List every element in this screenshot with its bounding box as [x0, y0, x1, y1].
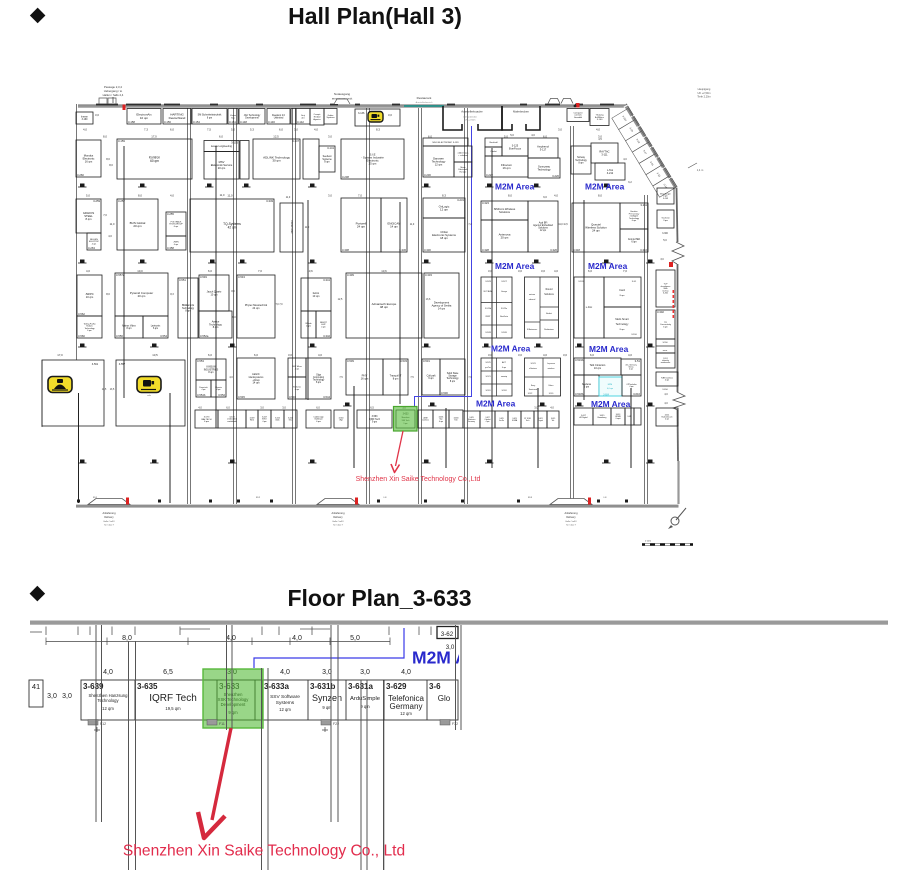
svg-text:3-230: 3-230 [424, 173, 431, 177]
svg-text:60 qm: 60 qm [150, 159, 159, 163]
svg-text:3-154: 3-154 [193, 120, 200, 124]
svg-text:3-342: 3-342 [323, 334, 330, 338]
svg-text:12 qm: 12 qm [440, 208, 449, 212]
svg-text:8,3: 8,3 [170, 293, 174, 296]
svg-text:3-610: 3-610 [633, 392, 640, 396]
svg-text:3-6: 3-6 [429, 682, 441, 691]
svg-text:Luftgarderobe: Luftgarderobe [463, 116, 477, 119]
svg-text:3-650: 3-650 [662, 389, 668, 391]
svg-text:3-525b: 3-525b [485, 308, 492, 310]
svg-text:Cognit: Cognit [538, 419, 543, 422]
svg-text:8,0: 8,0 [122, 635, 132, 642]
svg-text:3-529: 3-529 [485, 281, 491, 283]
svg-text:3-158: 3-158 [128, 120, 135, 124]
svg-text:wireless: wireless [548, 367, 555, 370]
svg-text:4 qm: 4 qm [629, 369, 633, 371]
svg-text:4 qm: 4 qm [295, 389, 300, 391]
svg-text:4,0: 4,0 [229, 376, 233, 379]
svg-text:3-222: 3-222 [486, 173, 493, 177]
svg-text:6,0: 6,0 [170, 128, 174, 132]
svg-text:4,0: 4,0 [623, 158, 627, 161]
svg-text:7,5: 7,5 [207, 128, 211, 132]
svg-text:3,0: 3,0 [518, 353, 522, 357]
svg-text:3-15: 3-15 [656, 172, 661, 178]
svg-text:8 qm: 8 qm [316, 382, 321, 384]
svg-text:IWST: IWST [486, 316, 492, 318]
svg-text:3,0: 3,0 [563, 353, 567, 357]
svg-text:3-531: 3-531 [423, 359, 430, 363]
svg-text:Shenzhen Xin Saike Technology: Shenzhen Xin Saike Technology Co., Ltd [123, 843, 405, 860]
svg-text:3-323: 3-323 [482, 201, 489, 205]
svg-text:6 qm: 6 qm [174, 226, 179, 228]
svg-text:8 qm: 8 qm [185, 310, 190, 313]
svg-text:3-543: 3-543 [238, 275, 245, 279]
svg-text:Delivery: Delivery [333, 515, 343, 519]
svg-text:cafe: cafe [147, 395, 152, 397]
svg-text:3-320: 3-320 [550, 248, 557, 252]
svg-text:M2M Area: M2M Area [591, 399, 631, 409]
svg-text:3-554: 3-554 [160, 334, 167, 338]
svg-text:3-51: 3-51 [635, 359, 641, 363]
svg-text:3-553: 3-553 [197, 359, 204, 363]
svg-text:3-629: 3-629 [386, 682, 407, 691]
svg-text:4,0: 4,0 [550, 406, 554, 410]
svg-text:13,5: 13,5 [152, 353, 158, 357]
svg-text:3-557a: 3-557a [116, 273, 125, 277]
svg-text:3-147: 3-147 [292, 139, 299, 143]
svg-text:11,0: 11,0 [286, 196, 291, 199]
svg-text:3-519: 3-519 [485, 390, 491, 392]
svg-text:M2M Area: M2M Area [495, 182, 535, 192]
svg-text:3-148: 3-148 [240, 120, 247, 124]
svg-text:3-238: 3-238 [342, 175, 349, 179]
svg-text:Germany: Germany [390, 702, 423, 711]
svg-text:3,0: 3,0 [328, 194, 332, 198]
svg-text:3-211: 3-211 [640, 203, 647, 207]
svg-text:7,0: 7,0 [258, 269, 262, 273]
svg-text:advncd: advncd [529, 299, 535, 301]
svg-text:parTec: parTec [485, 366, 491, 369]
svg-text:Notausgang: Notausgang [334, 92, 351, 96]
svg-text:5,0: 5,0 [86, 194, 90, 198]
svg-text:3,0: 3,0 [660, 258, 664, 261]
svg-text:3-212: 3-212 [607, 172, 614, 175]
svg-text:3-263: 3-263 [88, 246, 95, 250]
svg-text:NYCBWA: NYCBWA [484, 290, 493, 293]
svg-text:13,5: 13,5 [102, 389, 107, 391]
svg-text:8,0: 8,0 [103, 135, 107, 139]
svg-text:Glo: Glo [438, 694, 451, 703]
svg-text:3-153: 3-153 [231, 141, 238, 145]
svg-text:3-544: 3-544 [323, 395, 330, 399]
svg-text:wireless: wireless [422, 419, 429, 422]
svg-text:3-151: 3-151 [229, 120, 236, 124]
svg-text:8 qm: 8 qm [450, 380, 455, 383]
svg-text:8,0: 8,0 [109, 163, 113, 167]
svg-text:11,0: 11,0 [305, 226, 310, 229]
svg-text:4,0: 4,0 [318, 353, 322, 357]
svg-text:MeiG Smart: MeiG Smart [615, 318, 629, 321]
svg-text:3-160: 3-160 [82, 119, 89, 121]
svg-text:9 qm: 9 qm [360, 704, 370, 709]
svg-text:4,0: 4,0 [314, 128, 318, 132]
svg-text:3-604: 3-604 [603, 395, 610, 397]
svg-text:Solutions: Solutions [538, 227, 548, 230]
svg-text:Deutschland: Deutschland [169, 116, 186, 120]
svg-text:30 qm: 30 qm [272, 159, 281, 163]
svg-text:4,0: 4,0 [198, 406, 202, 410]
svg-text:6,0: 6,0 [254, 353, 258, 357]
svg-text:6,0: 6,0 [208, 269, 212, 273]
svg-text:LN: LN [604, 497, 607, 499]
svg-text:10 qm: 10 qm [313, 295, 320, 298]
svg-text:Systems: Systems [327, 116, 335, 119]
svg-text:20 qm: 20 qm [218, 166, 226, 170]
svg-text:waax: waax [663, 350, 667, 352]
svg-text:3,0: 3,0 [47, 693, 57, 700]
svg-text:Unlimited: Unlimited [274, 116, 284, 119]
svg-text:3-552a: 3-552a [200, 334, 209, 338]
svg-text:3-562: 3-562 [78, 312, 85, 316]
svg-text:20 qm: 20 qm [133, 224, 142, 228]
svg-text:11,0: 11,0 [220, 193, 225, 197]
svg-text:Halle / hall 8: Halle / hall 8 [332, 521, 344, 523]
svg-text:5,0: 5,0 [663, 239, 667, 242]
svg-text:3-521: 3-521 [485, 376, 491, 378]
svg-text:11,0: 11,0 [410, 223, 415, 226]
svg-text:3-530: 3-530 [441, 391, 448, 395]
svg-text:3,0: 3,0 [534, 406, 538, 410]
svg-text:Technology: Technology [537, 167, 551, 171]
svg-text:Matrox Video: Matrox Video [122, 325, 136, 328]
svg-text:3-519b: 3-519b [575, 358, 584, 362]
svg-text:Ausstellerbuache: Ausstellerbuache [461, 110, 483, 114]
svg-text:3-525e: 3-525e [501, 308, 508, 310]
svg-text:UK +2,50m: UK +2,50m [464, 120, 475, 122]
svg-text:6 qm: 6 qm [428, 377, 433, 380]
svg-text:Delivery: Delivery [566, 515, 576, 519]
svg-text:12 qm: 12 qm [102, 706, 114, 711]
svg-text:41: 41 [32, 682, 40, 691]
svg-text:8,0: 8,0 [106, 292, 110, 296]
svg-text:3-526: 3-526 [501, 332, 507, 334]
svg-text:7,5: 7,5 [339, 376, 343, 379]
svg-text:8,3: 8,3 [442, 194, 446, 198]
svg-text:3-333: 3-333 [425, 273, 432, 277]
svg-text:Technology: Technology [616, 323, 629, 326]
svg-text:3-631b: 3-631b [310, 682, 335, 691]
svg-text:4,0: 4,0 [628, 353, 632, 357]
svg-text:8 qm: 8 qm [393, 377, 399, 380]
svg-text:3-341: 3-341 [323, 278, 330, 282]
svg-text:8,0: 8,0 [231, 290, 235, 293]
svg-text:M2M Area: M2M Area [588, 261, 628, 271]
svg-text:FD3: FD3 [528, 497, 533, 499]
svg-text:3-18: 3-18 [635, 138, 640, 144]
svg-text:3-552: 3-552 [218, 393, 225, 397]
svg-text:3-14: 3-14 [663, 183, 668, 189]
svg-text:eSentara: eSentara [529, 367, 538, 370]
svg-text:4,0: 4,0 [401, 669, 411, 676]
svg-text:3,0: 3,0 [282, 406, 286, 410]
svg-text:3-551: 3-551 [179, 278, 186, 282]
svg-text:Tele: Tele [454, 420, 457, 422]
svg-text:Shenzhen Xin Saike Technology: Shenzhen Xin Saike Technology Co.,Ltd [356, 476, 481, 483]
svg-text:+ solution: + solution [458, 154, 468, 157]
svg-text:8,0: 8,0 [508, 194, 512, 198]
svg-text:3-561: 3-561 [92, 363, 99, 366]
svg-text:Tor / door 7: Tor / door 7 [566, 525, 577, 527]
svg-text:6,0: 6,0 [208, 353, 212, 357]
svg-text:F12: F12 [100, 722, 106, 726]
svg-text:Hallen / halls 2,4: Hallen / halls 2,4 [103, 93, 124, 97]
svg-text:8 qm: 8 qm [324, 161, 329, 164]
svg-text:3,0: 3,0 [95, 113, 99, 117]
svg-text:13,6: 13,6 [381, 269, 387, 273]
svg-text:3,0: 3,0 [558, 128, 562, 132]
svg-text:Tech: Tech [526, 420, 530, 422]
svg-text:3,0: 3,0 [288, 353, 292, 357]
svg-text:3-527: 3-527 [501, 281, 507, 283]
svg-text:3-539: 3-539 [347, 359, 354, 363]
svg-text:3-520: 3-520 [549, 393, 554, 395]
svg-text:11,0: 11,0 [110, 222, 115, 226]
svg-text:9 qm: 9 qm [372, 421, 377, 423]
svg-text:8 qm: 8 qm [208, 371, 213, 374]
svg-text:11,0 11,5: 11,0 11,5 [558, 224, 568, 226]
svg-text:16 qm: 16 qm [361, 377, 369, 381]
svg-text:24 qm: 24 qm [592, 229, 600, 233]
svg-text:M2M Area: M2M Area [495, 261, 535, 271]
svg-text:3-328: 3-328 [482, 248, 489, 252]
svg-text:13,6: 13,6 [426, 298, 431, 301]
svg-text:13,5: 13,5 [110, 389, 115, 391]
svg-text:20 qm: 20 qm [501, 236, 509, 240]
svg-text:3-19: 3-19 [629, 127, 634, 133]
svg-text:Tor / door 7: Tor / door 7 [333, 525, 344, 527]
svg-text:3-635: 3-635 [137, 682, 158, 691]
svg-text:SSV Software: SSV Software [270, 694, 300, 700]
svg-text:4,0: 4,0 [108, 234, 112, 238]
svg-text:Norway: Norway [577, 156, 586, 159]
svg-text:Round: Round [546, 289, 553, 291]
svg-text:amoniq: amoniq [501, 376, 507, 378]
svg-text:3-522: 3-522 [528, 393, 533, 395]
svg-text:4,0: 4,0 [543, 353, 547, 357]
svg-text:8,0: 8,0 [138, 194, 142, 198]
svg-text:7,5: 7,5 [410, 376, 414, 379]
svg-text:4,0: 4,0 [596, 128, 600, 132]
svg-text:Go-De: Go-De [499, 420, 504, 422]
svg-text:4,0: 4,0 [531, 133, 535, 137]
svg-text:Sony: Sony [531, 385, 535, 387]
svg-text:Ausstellerbereich: Ausstellerbereich [416, 101, 434, 104]
svg-text:3-156: 3-156 [164, 120, 171, 124]
svg-text:EverFocus: EverFocus [509, 147, 522, 150]
svg-text:6 qm: 6 qm [316, 421, 321, 423]
svg-text:3-330: 3-330 [424, 248, 431, 252]
svg-text:Malerbecken: Malerbecken [513, 110, 529, 114]
svg-text:6,0: 6,0 [588, 269, 592, 273]
svg-text:GesmbH: GesmbH [574, 117, 583, 119]
svg-text:der: der [301, 116, 304, 119]
svg-text:3-533: 3-533 [400, 359, 407, 363]
svg-text:8 qm: 8 qm [578, 162, 583, 164]
svg-text:3-17: 3-17 [642, 150, 647, 156]
svg-text:3-557: 3-557 [119, 363, 126, 366]
svg-text:17,0: 17,0 [151, 135, 157, 139]
svg-text:Solutions: Solutions [499, 210, 511, 214]
svg-text:3-257: 3-257 [118, 199, 125, 203]
svg-text:10 qm: 10 qm [140, 116, 149, 120]
svg-text:10 qm: 10 qm [594, 366, 601, 370]
svg-text:3,0: 3,0 [488, 269, 492, 273]
svg-text:Acal BFi: Acal BFi [539, 221, 548, 224]
svg-text:Hauptgang: Hauptgang [698, 87, 711, 91]
svg-text:Anlieferung: Anlieferung [102, 511, 116, 515]
svg-text:4 qm: 4 qm [295, 368, 300, 370]
svg-text:4 qm: 4 qm [92, 243, 97, 245]
svg-text:3-141: 3-141 [327, 146, 334, 150]
svg-text:6,2: 6,2 [628, 181, 632, 184]
svg-text:Agentur Embedded: Agentur Embedded [533, 224, 554, 227]
svg-text:4,0: 4,0 [664, 402, 668, 405]
svg-text:Agentur: Agentur [313, 118, 321, 121]
svg-text:8 qm: 8 qm [620, 329, 625, 331]
svg-text:10,0: 10,0 [137, 269, 143, 273]
svg-text:4,0: 4,0 [554, 194, 558, 198]
svg-text:4 qm: 4 qm [486, 421, 490, 423]
svg-text:3-518: 3-518 [501, 390, 507, 392]
svg-text:conec elec: conec elec [290, 220, 294, 234]
svg-text:19,5 qm: 19,5 qm [165, 706, 181, 711]
svg-text:4,0: 4,0 [554, 269, 558, 273]
svg-text:3-549: 3-549 [200, 275, 207, 279]
svg-text:3-301: 3-301 [663, 293, 669, 295]
svg-text:IU Antennas: IU Antennas [527, 328, 537, 331]
svg-text:3-302: 3-302 [657, 310, 664, 314]
svg-text:6,0: 6,0 [232, 316, 236, 319]
svg-text:3-554b: 3-554b [197, 393, 206, 397]
svg-text:8,3: 8,3 [376, 128, 380, 132]
svg-text:M2M Area: M2M Area [476, 399, 516, 409]
svg-text:Technology: Technology [97, 698, 119, 703]
svg-text:3,0: 3,0 [388, 113, 392, 117]
svg-text:6,0: 6,0 [316, 406, 320, 410]
svg-text:5,0: 5,0 [510, 133, 514, 137]
svg-text:M2M: M2M [608, 384, 613, 386]
svg-text:3-546: 3-546 [289, 395, 296, 399]
svg-text:7,0: 7,0 [623, 269, 627, 273]
svg-text:3,0: 3,0 [294, 128, 298, 132]
svg-text:4,5: 4,5 [598, 138, 602, 141]
svg-text:8 qm: 8 qm [620, 295, 625, 297]
svg-text:12 qm: 12 qm [279, 707, 291, 712]
svg-text:14 qm: 14 qm [390, 225, 398, 229]
svg-text:12 qm: 12 qm [540, 230, 546, 232]
svg-text:JAC Technology: JAC Technology [244, 114, 261, 117]
svg-text:3-255: 3-255 [167, 212, 174, 216]
svg-text:8 qm: 8 qm [213, 326, 219, 329]
svg-text:3-510: 3-510 [631, 334, 637, 336]
svg-text:kessler engineering: kessler engineering [211, 145, 232, 148]
svg-text:4,0: 4,0 [280, 669, 290, 676]
svg-text:3-519: 3-519 [578, 281, 584, 283]
svg-text:Bechtold: Bechtold [490, 141, 498, 144]
svg-text:3-259: 3-259 [93, 199, 100, 203]
svg-text:3-336: 3-336 [399, 248, 406, 252]
svg-text:Germany: Germany [468, 420, 475, 423]
svg-text:4,0: 4,0 [83, 128, 87, 132]
svg-text:3-159: 3-159 [118, 139, 125, 143]
svg-text:3-142: 3-142 [297, 120, 304, 124]
svg-text:10 qm: 10 qm [86, 295, 94, 299]
svg-text:6 qm: 6 qm [204, 421, 209, 423]
svg-text:Smx: Smx [289, 420, 293, 422]
svg-text:IQRF Tech: IQRF Tech [149, 693, 197, 704]
svg-text:3 qm: 3 qm [663, 220, 668, 222]
svg-text:3-220: 3-220 [552, 174, 559, 178]
svg-text:3,0: 3,0 [62, 693, 72, 700]
svg-text:4 qm: 4 qm [665, 380, 670, 382]
svg-text:Systems: Systems [276, 700, 295, 706]
svg-text:4 qm: 4 qm [439, 421, 444, 423]
svg-text:FD2: FD2 [256, 497, 261, 499]
svg-text:A1 Digital: A1 Digital [579, 416, 588, 419]
svg-text:8 qm: 8 qm [86, 217, 93, 221]
svg-text:12,5: 12,5 [273, 135, 279, 139]
svg-text:3-560: 3-560 [78, 334, 85, 338]
svg-text:Halle / hall 8: Halle / hall 8 [103, 521, 115, 523]
svg-text:3,0: 3,0 [518, 269, 522, 273]
svg-text:4 qm: 4 qm [174, 244, 179, 246]
svg-text:12 qm: 12 qm [400, 711, 412, 716]
svg-text:7,3: 7,3 [144, 128, 148, 132]
svg-text:7,0: 7,0 [103, 213, 107, 217]
svg-text:Ubiik: Ubiik [275, 420, 279, 422]
svg-text:6 qm: 6 qm [153, 328, 158, 330]
svg-text:3-550: 3-550 [662, 342, 668, 344]
svg-text:48 qm: 48 qm [380, 305, 389, 309]
svg-text:6,0: 6,0 [219, 135, 223, 139]
svg-text:weidmueller: weidmueller [661, 362, 671, 364]
svg-text:Europe: Europe [460, 171, 468, 174]
svg-text:6 qm: 6 qm [663, 326, 668, 328]
svg-text:3-518b: 3-518b [575, 392, 584, 396]
svg-text:25 qm: 25 qm [369, 162, 377, 166]
svg-text:16 qm: 16 qm [85, 159, 93, 163]
svg-text:3-339: 3-339 [347, 273, 354, 277]
svg-text:4,0: 4,0 [226, 635, 236, 642]
svg-text:7,0 7,0: 7,0 7,0 [275, 304, 283, 306]
svg-text:4,0: 4,0 [170, 194, 174, 198]
svg-text:Boomberg: Boomberg [598, 416, 607, 419]
svg-text:Gaoye: Gaoye [501, 291, 508, 293]
svg-text:3-556: 3-556 [116, 334, 123, 338]
svg-text:worldwide: worldwide [227, 420, 237, 423]
svg-text:6 qm: 6 qm [632, 220, 637, 222]
svg-text:3-611: 3-611 [627, 416, 631, 418]
svg-text:Anlieferung: Anlieferung [564, 511, 578, 515]
svg-text:6,0: 6,0 [226, 406, 230, 410]
svg-text:Computing: Computing [313, 376, 325, 379]
svg-text:5,0: 5,0 [350, 635, 360, 642]
svg-text:16 qm: 16 qm [502, 166, 511, 170]
svg-text:6,0: 6,0 [543, 195, 547, 199]
svg-text:antenn: antenn [529, 293, 535, 296]
svg-text:3-260: 3-260 [77, 173, 84, 177]
svg-text:0 10m: 0 10m [645, 541, 651, 543]
